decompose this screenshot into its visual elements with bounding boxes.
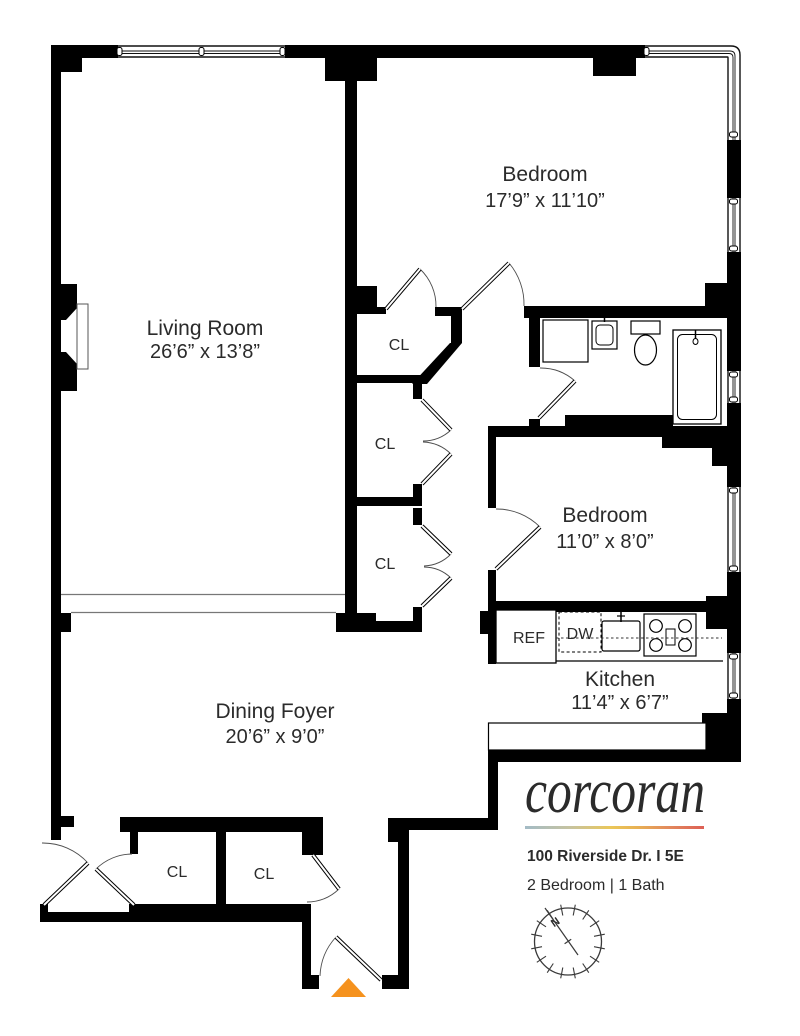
svg-text:Dining Foyer: Dining Foyer: [215, 700, 334, 723]
svg-text:CL: CL: [167, 864, 188, 881]
svg-text:CL: CL: [254, 866, 275, 883]
svg-text:26’6” x 13’8”: 26’6” x 13’8”: [150, 341, 260, 363]
svg-text:100 Riverside Dr. I 5E: 100 Riverside Dr. I 5E: [527, 848, 684, 865]
svg-text:17’9” x 11’10”: 17’9” x 11’10”: [485, 190, 605, 212]
svg-text:20’6” x 9’0”: 20’6” x 9’0”: [226, 726, 325, 748]
svg-text:Bedroom: Bedroom: [502, 163, 587, 186]
svg-text:CL: CL: [375, 436, 396, 453]
svg-text:Bedroom: Bedroom: [562, 504, 647, 527]
svg-text:corcoran: corcoran: [525, 758, 705, 826]
svg-text:11’0” x 8’0”: 11’0” x 8’0”: [556, 531, 653, 553]
svg-text:REF: REF: [513, 630, 545, 647]
svg-text:11’4” x 6’7”: 11’4” x 6’7”: [571, 692, 668, 714]
svg-text:2 Bedroom | 1 Bath: 2 Bedroom | 1 Bath: [527, 877, 665, 894]
svg-text:CL: CL: [375, 556, 396, 573]
svg-text:Kitchen: Kitchen: [585, 668, 655, 691]
svg-text:DW: DW: [567, 626, 595, 643]
svg-text:CL: CL: [389, 337, 410, 354]
svg-text:Living Room: Living Room: [147, 317, 264, 340]
